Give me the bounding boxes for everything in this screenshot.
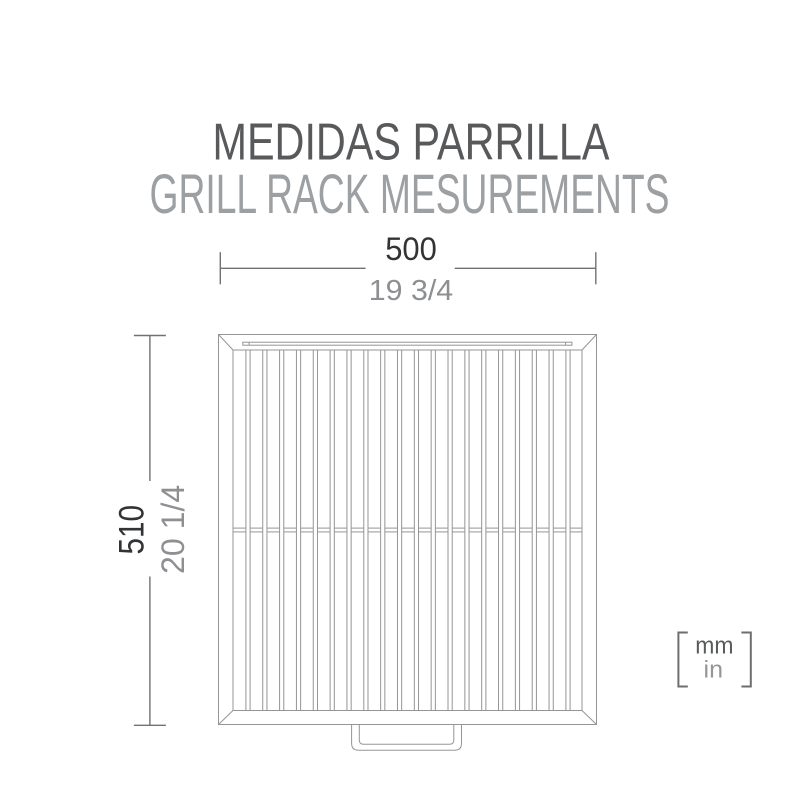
- svg-text:510: 510: [113, 505, 152, 555]
- svg-text:500: 500: [385, 231, 437, 267]
- svg-text:GRILL RACK MESUREMENTS: GRILL RACK MESUREMENTS: [150, 162, 670, 225]
- svg-text:19 3/4: 19 3/4: [369, 275, 453, 307]
- svg-text:20 1/4: 20 1/4: [155, 485, 191, 574]
- svg-text:in: in: [704, 657, 724, 684]
- svg-text:mm: mm: [695, 633, 733, 660]
